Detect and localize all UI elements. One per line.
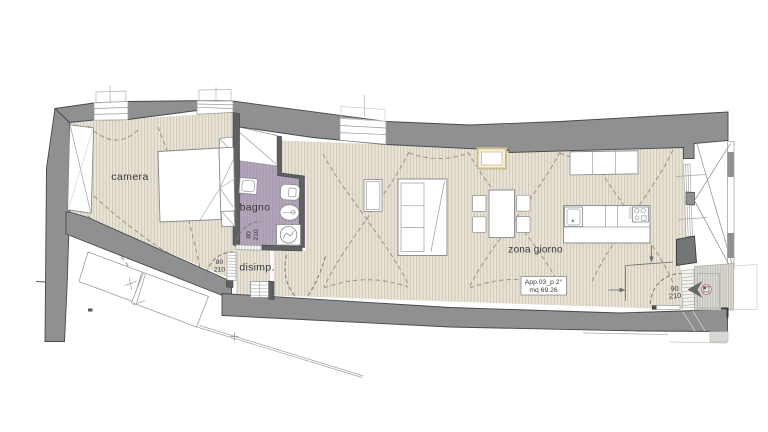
svg-text:210: 210	[214, 267, 226, 274]
svg-text:App.03_p 2°: App.03_p 2°	[525, 278, 563, 286]
svg-text:mq 69.26: mq 69.26	[529, 287, 558, 294]
svg-text:80: 80	[216, 259, 224, 266]
svg-text:210: 210	[669, 291, 682, 301]
svg-text:camera: camera	[111, 171, 148, 183]
svg-text:80: 80	[246, 231, 253, 239]
svg-text:zona giorno: zona giorno	[508, 245, 563, 256]
svg-text:bagno: bagno	[240, 202, 271, 214]
svg-text:210: 210	[253, 229, 260, 241]
svg-text:disimp.: disimp.	[239, 262, 274, 274]
